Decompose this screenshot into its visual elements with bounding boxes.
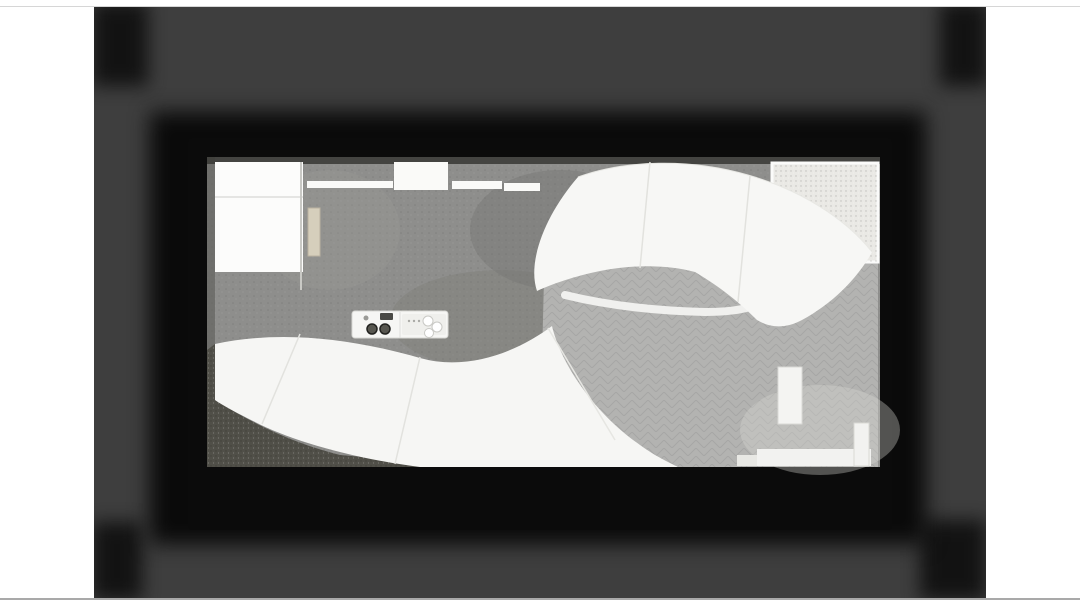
white-room-roof <box>215 162 303 272</box>
island-faucet <box>364 316 369 321</box>
plate <box>432 322 442 332</box>
tall-cabinet <box>308 208 320 256</box>
white-roof-block <box>394 162 448 190</box>
island-knob <box>418 320 420 322</box>
page-margin-left <box>0 0 94 607</box>
screenshot-canvas <box>0 0 1080 607</box>
plate <box>423 316 433 326</box>
cooking-pan <box>380 324 390 334</box>
architectural-render <box>0 0 1080 607</box>
wall-beam <box>504 183 540 191</box>
step-lower <box>737 455 758 466</box>
vertical-planter-box <box>778 367 802 424</box>
page-strip-bottom <box>0 598 1080 607</box>
wall-beam <box>452 181 502 189</box>
kitchen-island <box>352 311 448 338</box>
page-margin-right <box>986 0 1080 607</box>
step-side-wall <box>854 423 869 466</box>
plate <box>425 329 434 338</box>
island-cooktop <box>380 313 393 320</box>
page-strip-top <box>0 0 1080 7</box>
island-knob <box>413 320 415 322</box>
island-knob <box>408 320 410 322</box>
wall-beam <box>307 181 393 188</box>
cooking-pan <box>367 324 377 334</box>
